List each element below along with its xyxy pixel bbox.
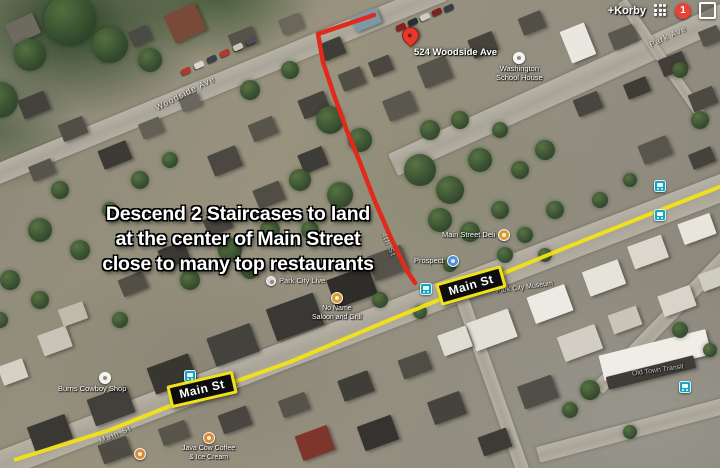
poi-main-street-deli[interactable]: Main Street Deli [442,229,510,241]
tree [404,154,436,186]
route-annotation-text: Descend 2 Staircases to land at the cent… [88,202,388,277]
tree [240,80,260,100]
tree [348,128,372,152]
poi-park-city-live[interactable]: Park City Live [266,276,325,286]
tree [372,292,388,308]
restaurant-icon[interactable] [134,448,146,460]
tree [511,161,529,179]
tree [420,120,440,140]
tree [413,305,427,319]
tree [131,171,149,189]
school-house-icon [513,52,525,64]
tree [289,169,311,191]
poi-java-cow[interactable]: Java Cow Coffee & Ice Cream [182,432,235,462]
tree [491,201,509,219]
tree [592,192,608,208]
satellite-map-viewport[interactable]: Woodside Ave Park Ave Main St 4th St Was… [0,0,720,468]
tree [281,61,299,79]
profile-frame-icon[interactable] [699,2,716,19]
tree [538,248,552,262]
restaurant-icon [498,229,510,241]
tree [316,106,344,134]
tree [623,425,637,439]
shop-icon [99,372,111,384]
tree [436,176,464,204]
tree [451,111,469,129]
tree [14,39,46,71]
music-venue-icon [266,276,276,286]
tree [691,111,709,129]
tree [28,218,52,242]
poi-prospect[interactable]: Prospect [414,255,459,267]
poi-washington-school-house[interactable]: Washington School House [496,52,543,82]
notification-badge[interactable]: 1 [675,3,691,19]
annotation-line-3: close to many top restaurants [88,252,388,277]
poi-burns-cowboy-shop[interactable]: Burns Cowboy Shop [58,372,126,394]
tree [703,343,717,357]
tree [92,27,128,63]
account-name[interactable]: +Korby [608,5,646,17]
bus-stop-icon[interactable] [654,209,666,221]
bar-icon [331,292,343,304]
tree [162,152,178,168]
tree [546,201,564,219]
poi-no-name-saloon[interactable]: No Name Saloon and Grill [312,292,362,322]
tree [468,148,492,172]
tree [138,48,162,72]
apps-grid-icon[interactable] [654,4,667,17]
tree [497,247,513,263]
tree [672,322,688,338]
tree [623,173,637,187]
tree [562,402,578,418]
bus-stop-icon[interactable] [420,283,432,295]
tree [70,240,90,260]
tree [112,312,128,328]
cafe-icon [203,432,215,444]
tree [535,140,555,160]
tree [0,270,20,290]
tree [51,181,69,199]
account-bar: +Korby 1 [608,2,716,19]
tree [517,227,533,243]
tree [672,62,688,78]
destination-pin-label: 524 Woodside Ave [414,47,497,58]
annotation-line-2: at the center of Main Street [88,227,388,252]
lodging-icon [447,255,459,267]
tree [492,122,508,138]
annotation-line-1: Descend 2 Staircases to land [88,202,388,227]
tree [31,291,49,309]
bus-stop-icon[interactable] [654,180,666,192]
bus-stop-icon[interactable] [679,381,691,393]
tree [580,380,600,400]
